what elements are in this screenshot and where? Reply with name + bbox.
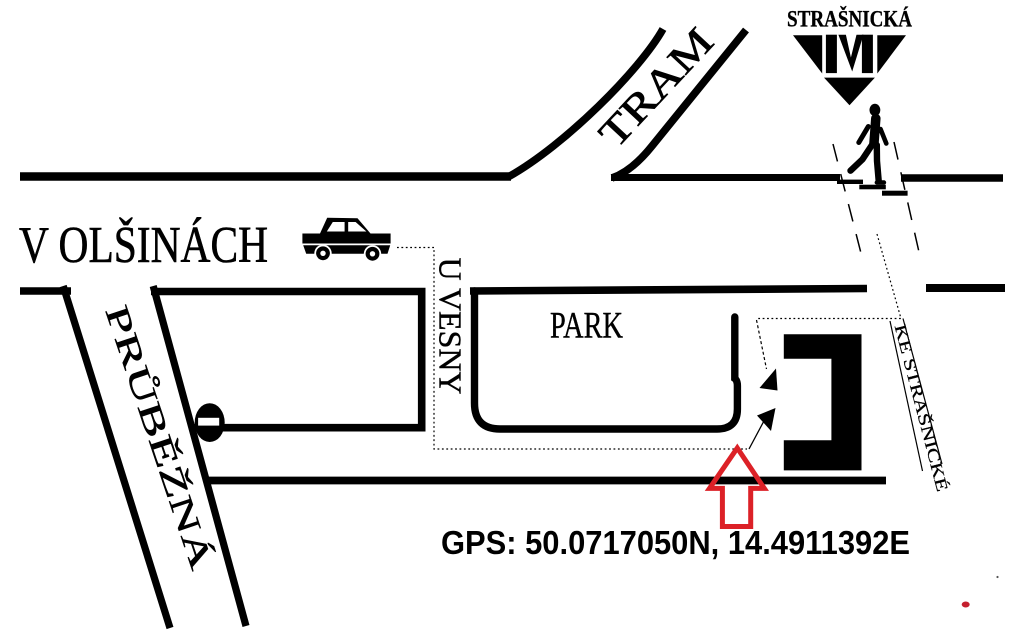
svg-text:V OLŠINÁCH: V OLŠINÁCH — [19, 216, 268, 274]
svg-text:PARK: PARK — [550, 306, 623, 347]
svg-text:STRAŠNICKÁ: STRAŠNICKÁ — [787, 6, 912, 32]
svg-text:U VESNY: U VESNY — [433, 258, 468, 395]
svg-text:GPS: 50.0717050N, 14.4911392E: GPS: 50.0717050N, 14.4911392E — [441, 524, 910, 561]
